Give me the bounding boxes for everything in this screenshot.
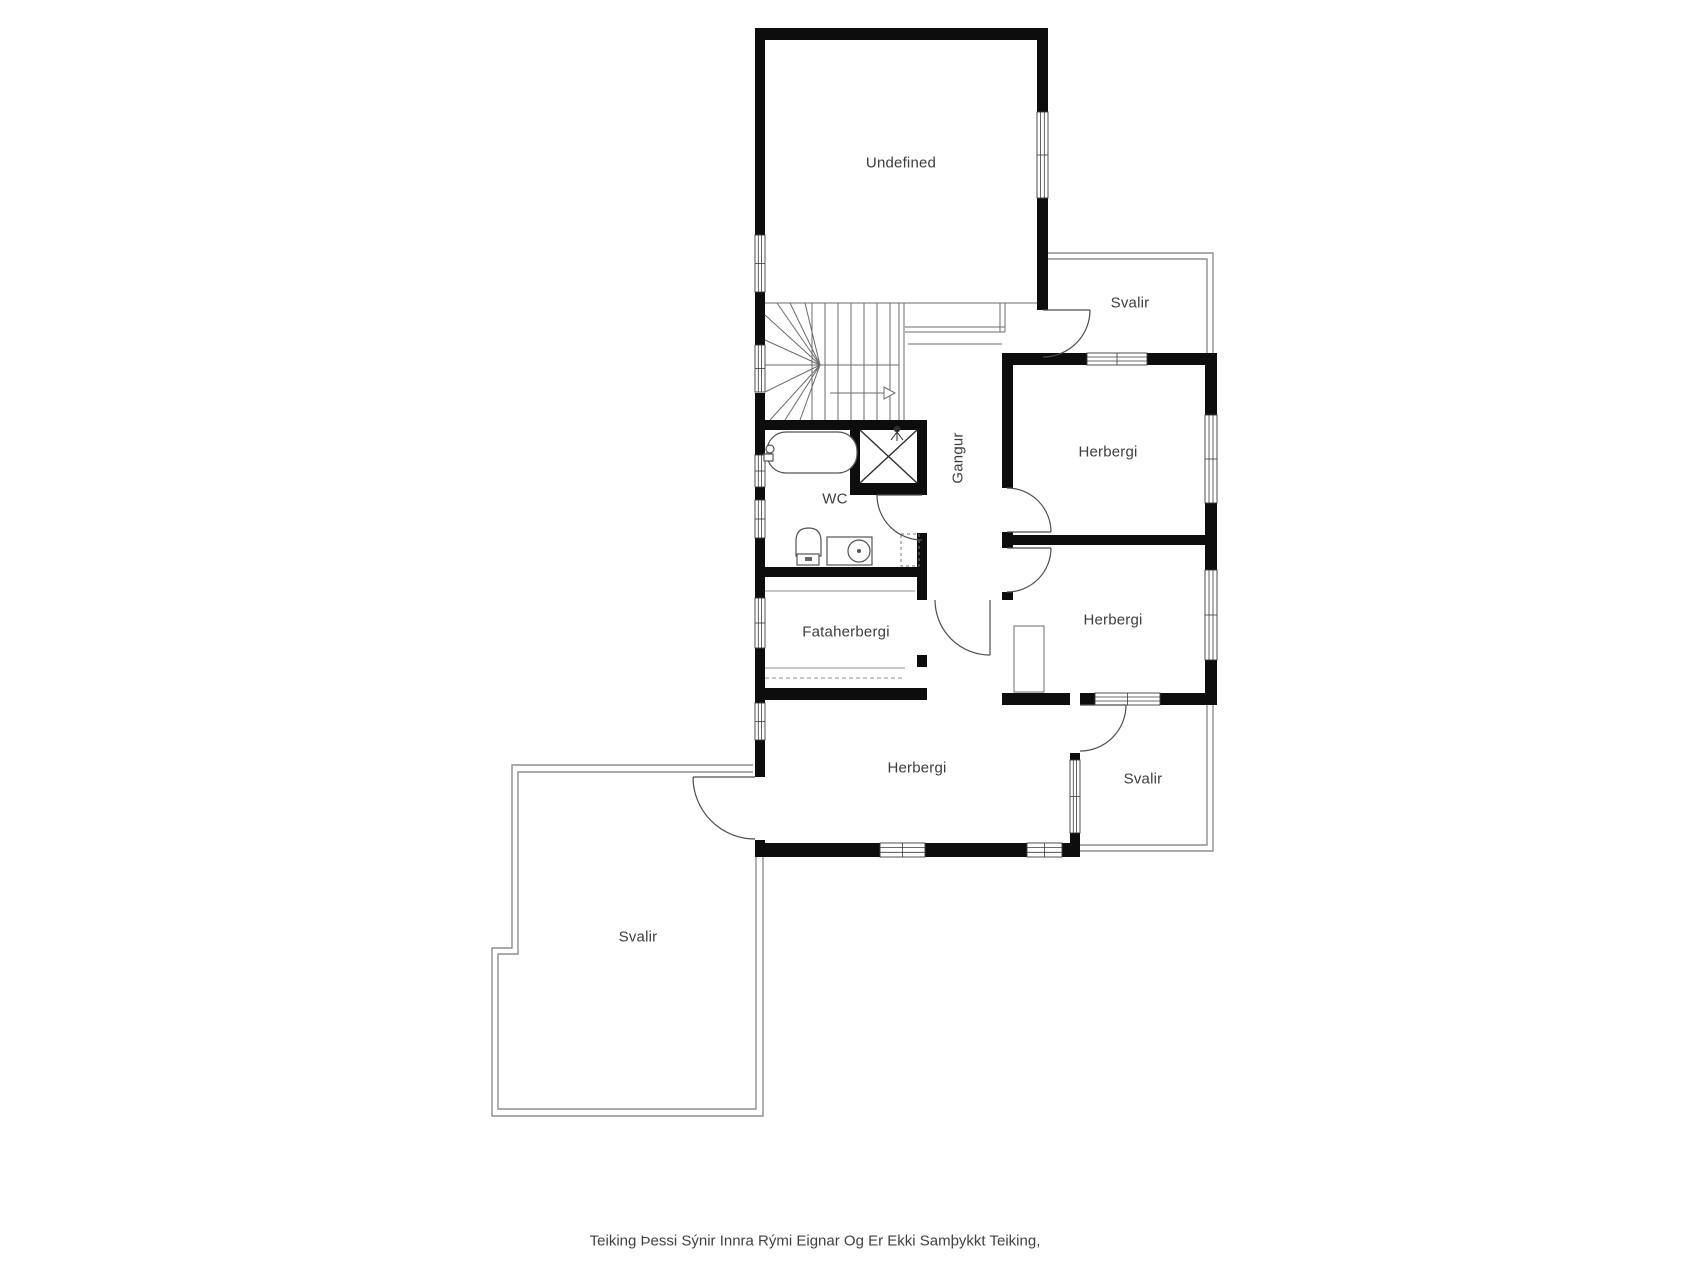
window: [755, 235, 765, 292]
windows: [755, 112, 1217, 857]
shower: [860, 426, 917, 483]
window: [880, 843, 925, 857]
room-label-svalir-large: Svalir: [619, 929, 658, 946]
floorplan-canvas: Undefined Svalir Herbergi Gangur WC Herb…: [0, 0, 1707, 1280]
window: [1087, 353, 1147, 365]
staircase: [765, 303, 1037, 420]
room-label-wc: WC: [822, 491, 847, 508]
window: [1205, 415, 1217, 503]
closet-herbergi-mid: [1014, 626, 1044, 692]
door-herbergi-top-right: [1007, 488, 1051, 532]
window: [755, 500, 765, 538]
room-label-herbergi-top: Herbergi: [1078, 444, 1137, 461]
balcony-walls: [492, 253, 1213, 1116]
window: [1205, 570, 1217, 660]
window: [1027, 843, 1062, 857]
window: [1037, 112, 1048, 198]
stair-direction-arrow: [830, 387, 895, 399]
door-gangur-bottom: [935, 600, 990, 655]
door-to-svalir-top: [1043, 310, 1090, 357]
sink: [827, 537, 872, 565]
window: [1070, 760, 1080, 833]
door-to-svalir-bottom-right: [1080, 705, 1126, 751]
window: [1095, 693, 1160, 705]
room-label-undefined: Undefined: [866, 155, 936, 172]
disclaimer-text: Teiking Þessi Sýnir Innra Rými Eignar Og…: [590, 1233, 1041, 1250]
window: [755, 703, 765, 740]
room-label-svalir-bottom-right: Svalir: [1124, 771, 1163, 788]
room-label-fataherbergi: Fataherbergi: [802, 624, 889, 641]
window: [755, 598, 765, 648]
room-label-herbergi-bottom: Herbergi: [887, 760, 946, 777]
toilet: [796, 528, 821, 565]
door-wc: [877, 495, 922, 540]
bathtub: [767, 432, 857, 473]
door-herbergi-mid-right: [1007, 548, 1051, 592]
room-label-herbergi-mid: Herbergi: [1083, 612, 1142, 629]
room-label-svalir-top: Svalir: [1111, 295, 1150, 312]
window: [755, 345, 765, 392]
door-to-svalir-large: [693, 777, 755, 839]
room-label-gangur: Gangur: [950, 432, 967, 483]
